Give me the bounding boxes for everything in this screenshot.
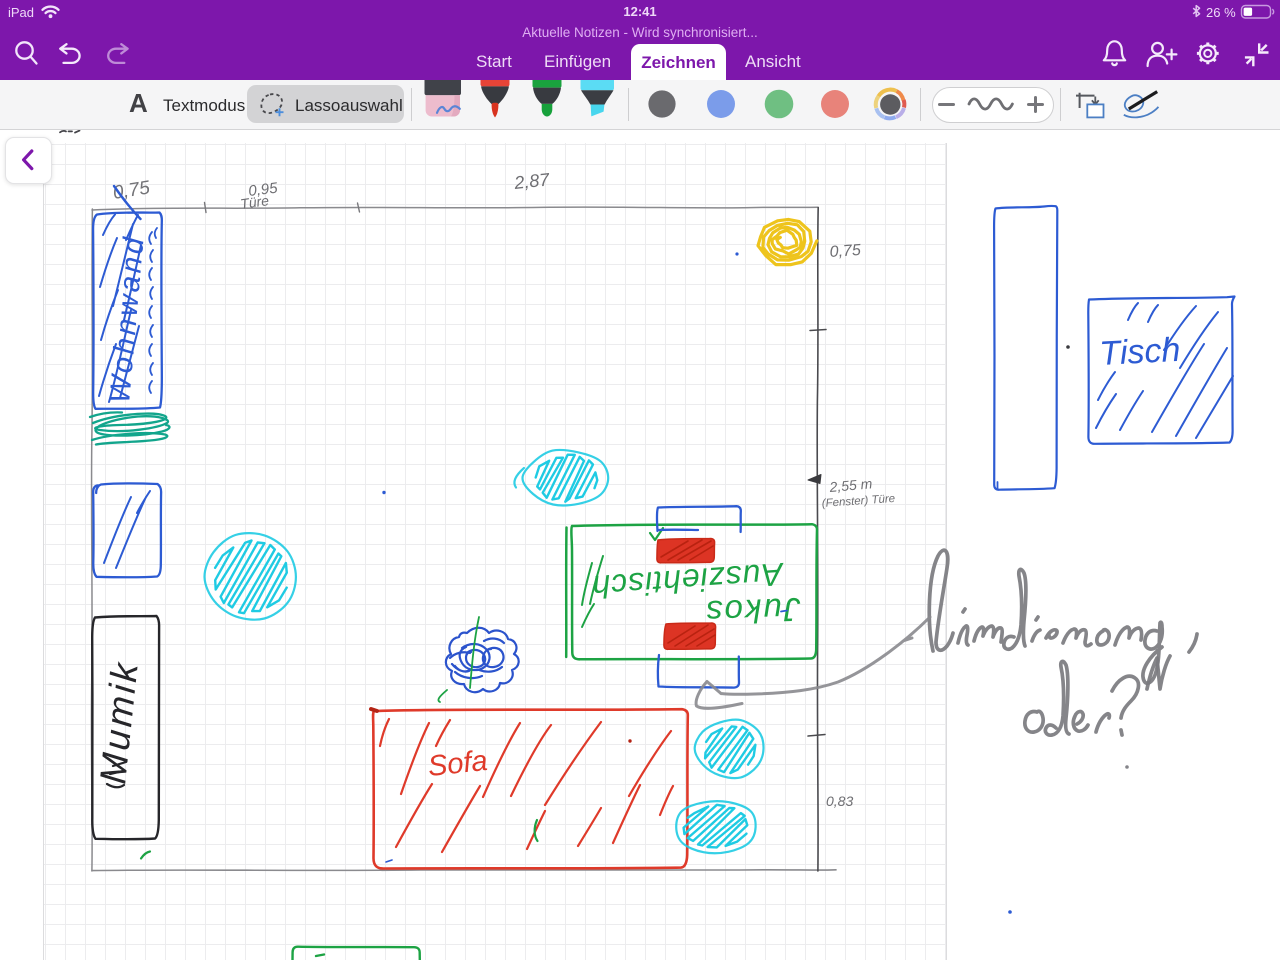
svg-text:0,83: 0,83: [826, 793, 853, 809]
svg-text:2,87: 2,87: [512, 169, 551, 193]
svg-text:Wohnwand: Wohnwand: [104, 233, 151, 404]
svg-text:Tisch: Tisch: [1098, 331, 1181, 373]
svg-text:2,55 m: 2,55 m: [828, 475, 873, 495]
svg-text:Mumik: Mumik: [92, 658, 146, 786]
svg-text:Türe: Türe: [239, 192, 270, 212]
svg-text:0,75: 0,75: [829, 242, 861, 261]
svg-text:Sofa: Sofa: [426, 745, 489, 783]
svg-text:(Fenster) Türe: (Fenster) Türe: [821, 493, 895, 510]
